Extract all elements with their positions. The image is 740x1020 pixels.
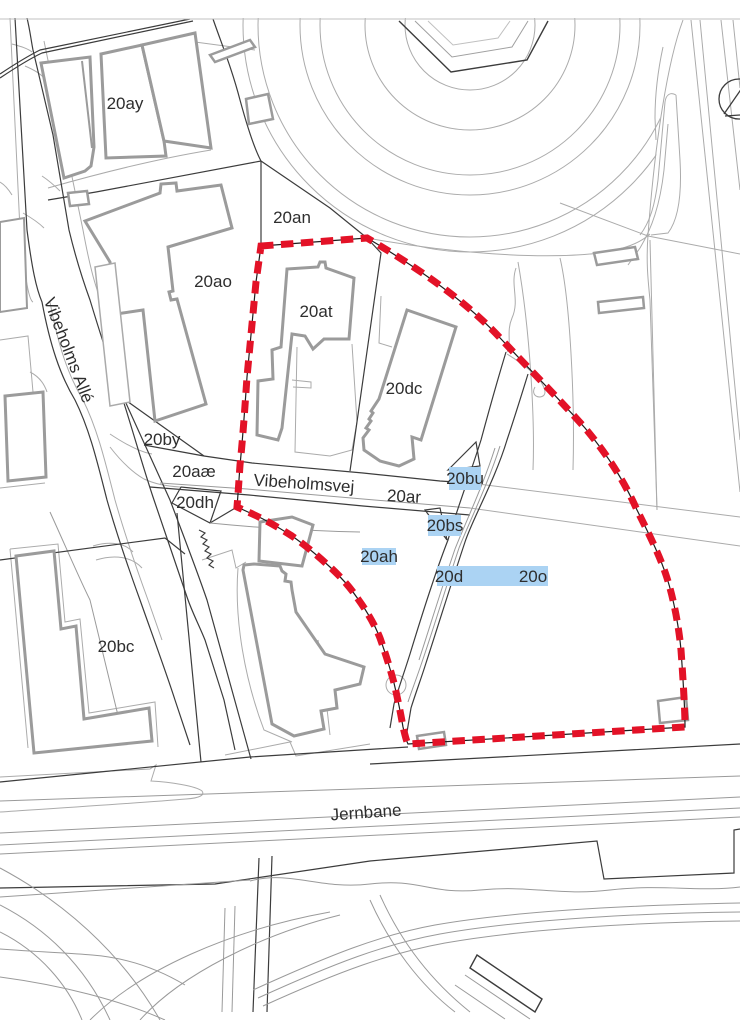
svg-text:20an: 20an [273, 208, 311, 227]
svg-text:20by: 20by [144, 430, 181, 449]
svg-text:20dc: 20dc [386, 379, 423, 398]
svg-text:20ao: 20ao [194, 272, 232, 291]
svg-text:20bc: 20bc [98, 637, 135, 656]
svg-text:20bs: 20bs [427, 516, 464, 535]
svg-text:20d: 20d [435, 567, 463, 586]
svg-text:20aæ: 20aæ [172, 462, 215, 481]
svg-text:20at: 20at [299, 302, 332, 321]
svg-text:20o: 20o [519, 567, 547, 586]
svg-text:20ah: 20ah [360, 547, 398, 566]
svg-text:20ay: 20ay [107, 94, 144, 113]
svg-text:20ar: 20ar [386, 486, 421, 507]
svg-text:20bu: 20bu [446, 469, 484, 488]
svg-text:20dh: 20dh [176, 493, 214, 512]
